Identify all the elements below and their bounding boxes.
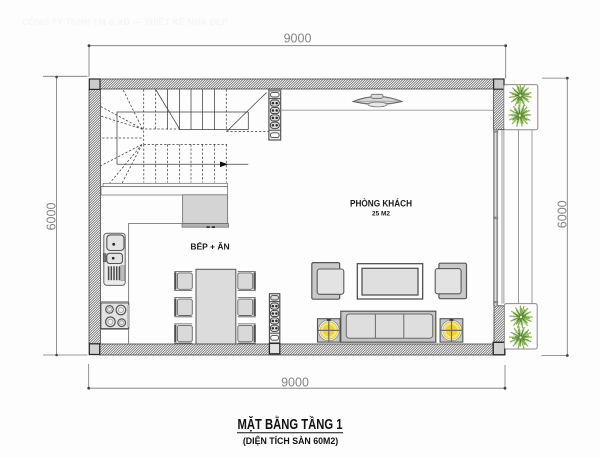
svg-text:MẶT BẰNG TẦNG 1: MẶT BẰNG TẦNG 1 [238, 415, 343, 433]
svg-text:PHÒNG KHÁCH: PHÒNG KHÁCH [350, 198, 412, 210]
svg-text:BẾP + ĂN: BẾP + ĂN [190, 242, 229, 252]
svg-text:9000: 9000 [284, 32, 312, 46]
svg-text:(DIỆN TÍCH SÀN 60M2): (DIỆN TÍCH SÀN 60M2) [243, 435, 338, 446]
svg-text:25 M2: 25 M2 [372, 211, 390, 218]
svg-text:6000: 6000 [555, 200, 569, 228]
svg-text:CÔNG TY TNHH TM & XD — THIẾT K: CÔNG TY TNHH TM & XD — THIẾT KẾ NHÀ ĐẸP [22, 16, 228, 27]
svg-text:6000: 6000 [44, 203, 58, 231]
svg-text:9000: 9000 [281, 375, 309, 389]
